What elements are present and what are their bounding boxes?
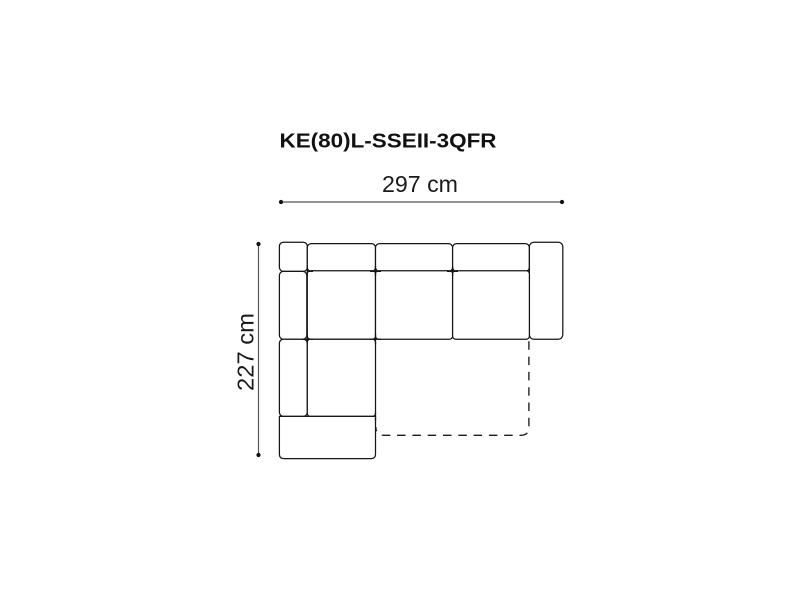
svg-text:297 cm: 297 cm [382, 171, 458, 197]
svg-text:KE(80)L-SSEII-3QFR: KE(80)L-SSEII-3QFR [280, 131, 498, 153]
svg-text:227 cm: 227 cm [233, 313, 259, 391]
